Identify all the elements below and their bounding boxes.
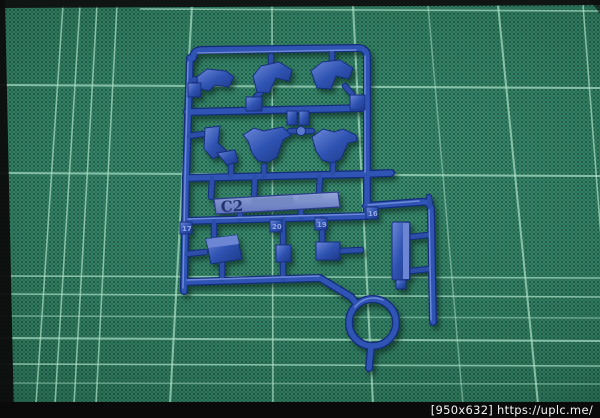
photo-edge-shadows [0,0,600,418]
edge-top [0,0,600,8]
edge-left [0,0,14,418]
watermark-text: [950x632] https://uplc.me/ [431,403,593,417]
watermark-bar: [950x632] https://uplc.me/ [0,402,600,418]
edge-top-right [590,0,600,14]
photo-frame: C2 17 20 19 16 [0,0,600,418]
